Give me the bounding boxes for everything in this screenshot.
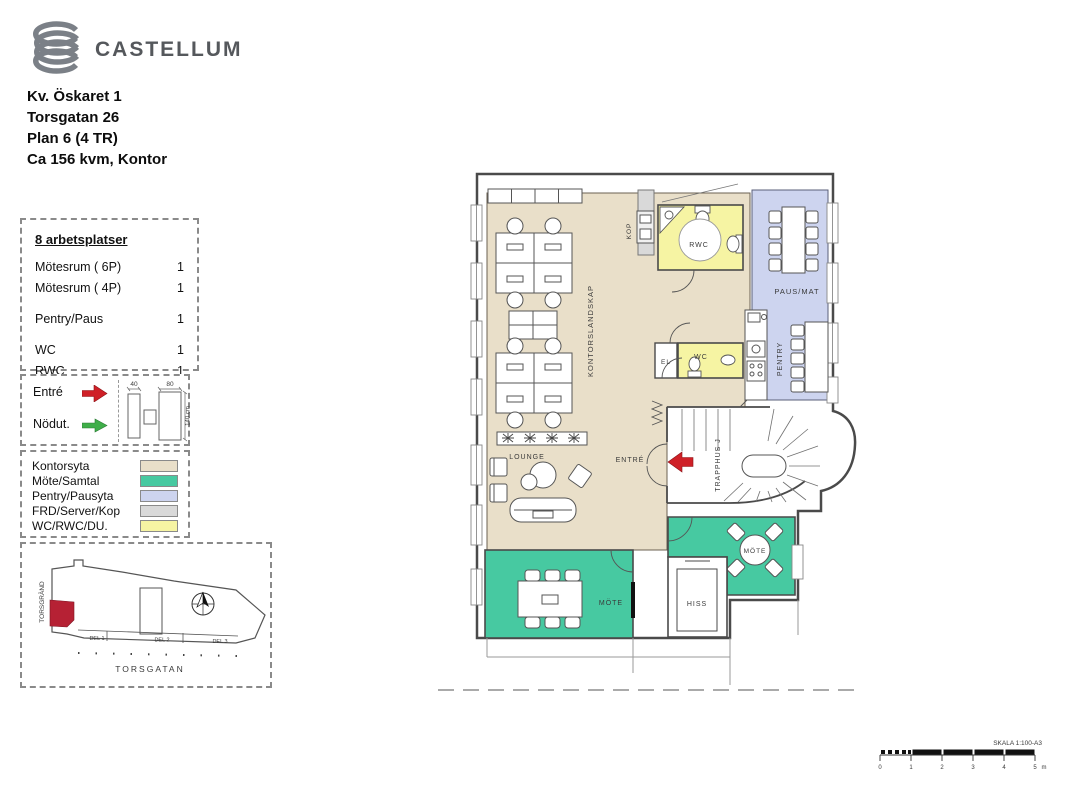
siteplan-panel: TORSGRÄND DEL 1 DEL 2 DEL 3 TORSGATAN (20, 542, 272, 688)
brand-name: CASTELLUM (95, 38, 243, 62)
legend-swatch-wc (140, 520, 178, 532)
tv-screen (631, 582, 635, 618)
mote-6p-furniture (518, 570, 582, 628)
site-del3: DEL 3 (212, 639, 227, 645)
svg-text:1: 1 (909, 765, 913, 771)
program-row: Mötesrum ( 4P) 1 (35, 281, 184, 295)
label-pentry: PENTRY (777, 342, 784, 376)
legend-item: Pentry/Pausyta (32, 488, 178, 503)
entre-arrow-icon (82, 385, 108, 402)
label-wc: WC (694, 354, 708, 361)
castellum-logo-icon (26, 18, 90, 80)
label-lounge: LOUNGE (509, 454, 545, 461)
plan-header: Kv. Öskaret 1 Torsgatan 26 Plan 6 (4 TR)… (27, 86, 167, 170)
label-pausmat: PAUS/MAT (774, 287, 819, 296)
legend-swatch-frd (140, 505, 178, 517)
svg-text:140 cm: 140 cm (186, 406, 191, 426)
sideboard-plants (497, 432, 587, 445)
floorplan-drawing: KONTORSLANDSKAP KOP RWC PAUS/MAT PENTRY … (430, 145, 870, 720)
panel-divider (118, 380, 119, 442)
program-title: 8 arbetsplatser (35, 232, 184, 247)
header-street: Torsgatan 26 (27, 107, 167, 128)
svg-text:m: m (1042, 765, 1047, 771)
nodut-arrow-icon (82, 418, 108, 433)
header-floor: Plan 6 (4 TR) (27, 128, 167, 149)
legend-item: Möte/Samtal (32, 473, 178, 488)
legend-swatch-pentry (140, 490, 178, 502)
nodut-label: Nödut. (33, 417, 70, 431)
street-left-label: TORSGRÄND (38, 581, 46, 623)
legend-swatch-mote (140, 475, 178, 487)
bar-counter (791, 322, 828, 392)
program-row: Mötesrum ( 6P) 1 (35, 260, 184, 274)
top-cabinets (488, 189, 582, 203)
label-trapphus: TRAPPHUS J (715, 438, 722, 492)
label-hiss: HISS (687, 601, 707, 608)
label-el: EL (661, 359, 671, 366)
svg-text:40: 40 (130, 381, 138, 388)
pentry-counter (745, 310, 767, 400)
svg-text:2: 2 (940, 765, 944, 771)
color-legend-panel: Kontorsyta Möte/Samtal Pentry/Pausyta FR… (20, 450, 190, 538)
site-del2: DEL 2 (154, 638, 169, 644)
site-highlight-area (50, 600, 74, 627)
scale-label: SKALA 1:100-A3 (993, 740, 1042, 747)
program-row: WC 1 (35, 343, 184, 357)
svg-text:4: 4 (1002, 765, 1006, 771)
label-rwc: RWC (689, 242, 709, 249)
scale-bar: SKALA 1:100-A3 0 1 2 3 4 5 m (872, 736, 1050, 776)
header-area: Ca 156 kvm, Kontor (27, 149, 167, 170)
entre-label: Entré (33, 385, 63, 399)
copier (637, 211, 654, 243)
svg-text:5: 5 (1033, 765, 1037, 771)
legend-item: FRD/Server/Kop (32, 504, 178, 519)
header-quarter: Kv. Öskaret 1 (27, 86, 167, 107)
site-del1: DEL 1 (89, 636, 104, 642)
svg-text:0: 0 (878, 765, 882, 771)
legend-item: WC/RWC/DU. (32, 519, 178, 534)
label-mote-6p: MÖTE (599, 599, 623, 607)
siteplan-drawing: TORSGRÄND DEL 1 DEL 2 DEL 3 TORSGATAN (22, 544, 270, 686)
furniture-dimension-diagram: 40 80 140 cm (120, 378, 190, 446)
label-entre: ENTRÉ (616, 455, 645, 464)
floorplan-page: CASTELLUM Kv. Öskaret 1 Torsgatan 26 Pla… (0, 0, 1067, 792)
legend-item: Kontorsyta (32, 458, 178, 473)
elevator (668, 557, 727, 637)
work-table (509, 311, 557, 339)
legend-swatch-kontorsyta (140, 460, 178, 472)
svg-text:80: 80 (166, 381, 174, 388)
label-kop: KOP (626, 223, 633, 240)
label-mote-4p: MÖTE (744, 547, 767, 555)
street-bottom-label: TORSGATAN (115, 664, 184, 674)
program-panel: 8 arbetsplatser Mötesrum ( 6P) 1 Mötesru… (20, 218, 199, 371)
program-row: Pentry/Paus 1 (35, 312, 184, 326)
label-kontorslandskap: KONTORSLANDSKAP (586, 285, 595, 377)
svg-text:3: 3 (971, 765, 975, 771)
symbols-panel: Entré Nödut. 40 80 140 cm (20, 374, 190, 446)
